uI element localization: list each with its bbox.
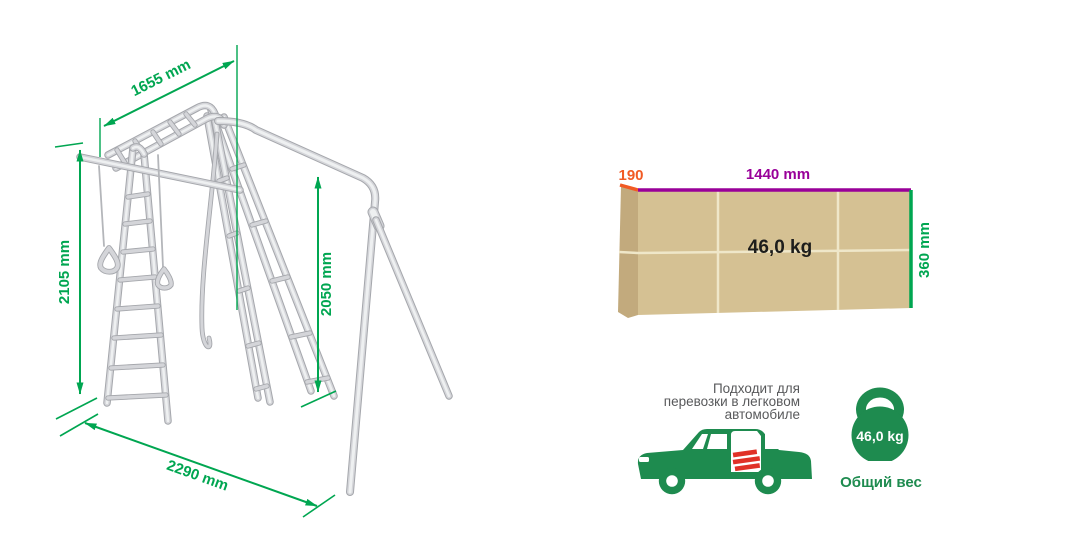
total-weight-badge: 46,0 kg Общий вес [840,393,922,491]
car-headlight [639,457,649,462]
total-weight-caption: Общий вес [840,474,922,491]
transport-note: Подходит для перевозки в легковом автомо… [664,381,800,422]
transport-note-line-3: автомобиле [725,407,800,422]
dimension-annotations: 1655 mm 2105 mm 2050 mm 2290 mm [55,45,336,517]
total-weight-value: 46,0 kg [856,428,903,444]
product-spec-sheet: 1655 mm 2105 mm 2050 mm 2290 mm [0,0,1080,557]
climbing-frame-illustration [80,106,449,492]
box-length-label: 1440 mm [746,166,810,183]
car-cargo-package [732,449,761,471]
dimension-label-swing: 2050 mm [318,252,335,316]
dimension-bottom-width: 2290 mm [60,414,335,517]
package-box: 190 1440 mm 360 mm 46,0 kg [618,166,933,318]
dimension-label-top: 1655 mm [128,56,193,100]
dimension-label-left: 2105 mm [56,240,73,304]
box-weight-label: 46,0 kg [748,237,812,258]
spec-diagram-canvas: 1655 mm 2105 mm 2050 mm 2290 mm [0,0,1080,557]
dimension-left-height: 2105 mm [55,143,97,419]
car-icon [638,429,812,494]
box-depth-label: 190 [618,167,643,184]
box-height-label: 360 mm [916,222,933,278]
